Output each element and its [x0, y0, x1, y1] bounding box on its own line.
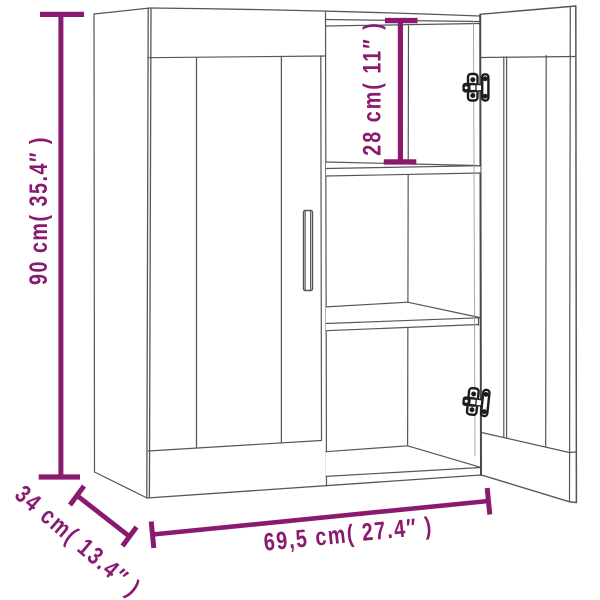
- svg-text:90 cm( 35.4″ ): 90 cm( 35.4″ ): [25, 136, 53, 285]
- svg-text:28 cm( 11″ ): 28 cm( 11″ ): [358, 21, 386, 156]
